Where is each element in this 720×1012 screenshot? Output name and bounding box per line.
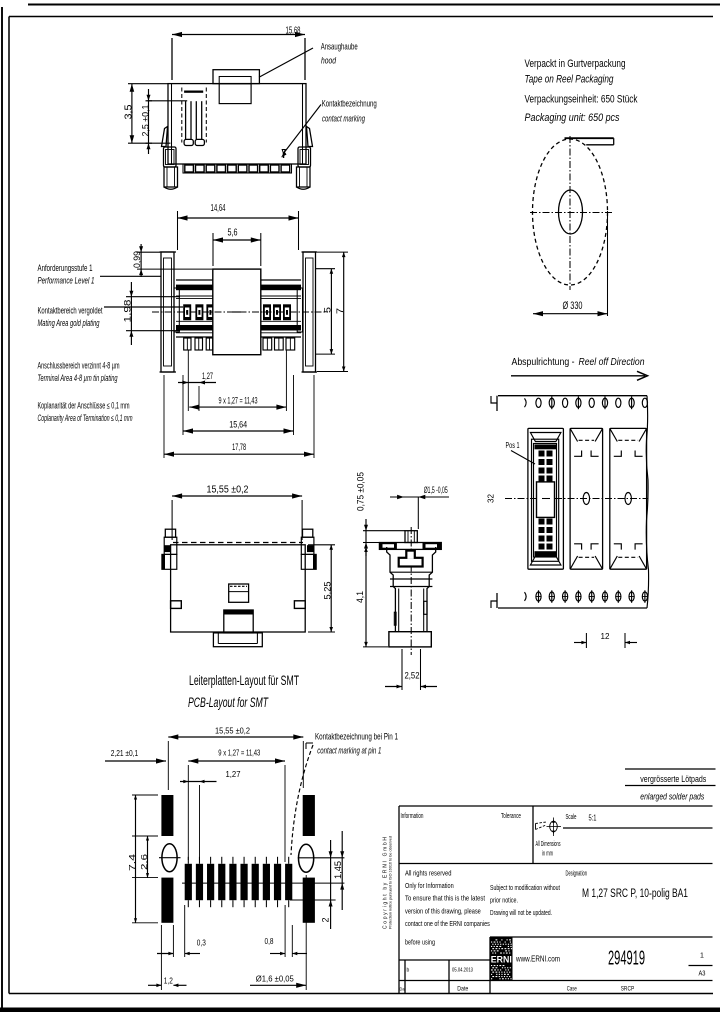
svg-text:Protection notice pursuant to: Protection notice pursuant to ISO 16016 …: [389, 836, 393, 929]
svg-text:A3: A3: [699, 969, 706, 978]
svg-text:prior notice.: prior notice.: [490, 896, 518, 905]
svg-text:Case: Case: [567, 986, 577, 993]
svg-text:Kontaktbereich vergoldet: Kontaktbereich vergoldet: [38, 306, 103, 316]
svg-text:Ø1,6 ±0,05: Ø1,6 ±0,05: [256, 974, 294, 984]
svg-text:7,4: 7,4: [127, 854, 137, 871]
svg-text:Ø 330: Ø 330: [563, 300, 583, 312]
svg-text:PCB-Layout for SMT: PCB-Layout for SMT: [188, 695, 269, 710]
svg-text:Terminal Area 4-8 µm tin plati: Terminal Area 4-8 µm tin plating: [38, 373, 118, 383]
svg-text:1,45: 1,45: [333, 861, 344, 879]
svg-text:Drawing will not be updated.: Drawing will not be updated.: [490, 908, 552, 917]
svg-text:Reel off Direction: Reel off Direction: [579, 356, 645, 368]
svg-text:To ensure that this is the lat: To ensure that this is the latest: [405, 894, 486, 903]
svg-text:2,6: 2,6: [139, 854, 149, 870]
svg-text:15,64: 15,64: [229, 420, 247, 431]
svg-text:0,8: 0,8: [265, 937, 274, 946]
svg-text:5,25: 5,25: [323, 582, 334, 600]
svg-text:contact one of the ERNI compan: contact one of the ERNI companies: [405, 919, 490, 928]
svg-text:Information: Information: [401, 813, 424, 820]
svg-text:Kontaktbezeichnung: Kontaktbezeichnung: [322, 99, 377, 110]
svg-text:15,55 ±0,2: 15,55 ±0,2: [207, 485, 249, 496]
svg-text:enlarged solder pads: enlarged solder pads: [640, 792, 704, 802]
svg-text:b: b: [407, 968, 410, 974]
svg-text:2,21 ±0,1: 2,21 ±0,1: [111, 749, 139, 758]
svg-text:Coplanarity Area of Terminatio: Coplanarity Area of Termination ≤ 0,1 mm: [38, 413, 133, 423]
svg-text:1,2: 1,2: [164, 976, 173, 985]
svg-text:Verpackungseinheit: 650 Stück: Verpackungseinheit: 650 Stück: [525, 94, 638, 106]
svg-text:Verpackt in Gurtverpackung: Verpackt in Gurtverpackung: [525, 58, 626, 70]
svg-text:Kontaktbezeichnung bei Pin 1: Kontaktbezeichnung bei Pin 1: [315, 732, 398, 742]
svg-text:5,6: 5,6: [228, 227, 238, 239]
svg-text:All Dimensions: All Dimensions: [536, 841, 561, 848]
svg-text:Anschlussbereich verzinnt 4-8: Anschlussbereich verzinnt 4-8 µm: [38, 361, 120, 371]
svg-text:5:1: 5:1: [589, 814, 597, 823]
svg-text:12: 12: [601, 632, 611, 641]
svg-text:9 x 1,27 = 11,43: 9 x 1,27 = 11,43: [218, 749, 260, 758]
svg-text:2: 2: [321, 918, 331, 923]
svg-text:ERNI: ERNI: [491, 955, 512, 965]
svg-text:0,99: 0,99: [132, 251, 143, 268]
svg-text:Ø1,5 -0,05: Ø1,5 -0,05: [424, 485, 448, 495]
svg-text:Subject to modification withou: Subject to modification without: [490, 883, 561, 892]
svg-text:5: 5: [323, 307, 334, 313]
svg-text:9 x 1,27 = 11,43: 9 x 1,27 = 11,43: [219, 396, 258, 406]
svg-text:Mating Area gold plating: Mating Area gold plating: [38, 318, 100, 328]
svg-text:Pos 1: Pos 1: [506, 441, 520, 450]
svg-text:www.ERNI.com: www.ERNI.com: [515, 955, 560, 964]
svg-text:before using: before using: [405, 938, 435, 947]
svg-text:Scale: Scale: [566, 814, 577, 821]
svg-text:1,27: 1,27: [226, 770, 242, 779]
svg-text:7: 7: [335, 308, 346, 314]
svg-text:hood: hood: [321, 56, 337, 67]
svg-text:All rights reserved: All rights reserved: [405, 869, 452, 878]
svg-text:Date: Date: [457, 986, 468, 993]
svg-text:0,3: 0,3: [197, 938, 206, 947]
svg-text:32: 32: [487, 493, 496, 503]
svg-text:Koplanarität der Anschlüsse ≤: Koplanarität der Anschlüsse ≤ 0,1 mm: [38, 401, 130, 411]
svg-text:Designation: Designation: [566, 871, 588, 878]
svg-text:in mm: in mm: [542, 851, 553, 858]
svg-text:3,5: 3,5: [124, 104, 135, 119]
svg-text:Leiterplatten-Layout für SMT: Leiterplatten-Layout für SMT: [189, 673, 299, 688]
svg-text:1: 1: [700, 953, 704, 960]
svg-text:Ansaughaube: Ansaughaube: [321, 42, 358, 53]
svg-text:contact marking: contact marking: [322, 114, 365, 125]
svg-text:14,64: 14,64: [211, 202, 226, 214]
svg-text:4,1: 4,1: [355, 591, 366, 603]
svg-text:05.04.2013: 05.04.2013: [452, 968, 473, 974]
svg-text:17,78: 17,78: [232, 442, 246, 453]
svg-text:Tolerance: Tolerance: [501, 813, 521, 820]
svg-text:Packaging unit: 650 pcs: Packaging unit: 650 pcs: [525, 112, 620, 124]
svg-text:Tape on Reel Packaging: Tape on Reel Packaging: [525, 74, 615, 86]
svg-text:1,98: 1,98: [123, 300, 134, 323]
svg-text:vergrösserte Lötpads: vergrösserte Lötpads: [640, 774, 706, 784]
svg-text:294919: 294919: [608, 948, 645, 970]
svg-text:15,55 ±0,2: 15,55 ±0,2: [215, 726, 250, 736]
svg-text:Performance Level 1: Performance Level 1: [38, 276, 95, 286]
svg-text:15,68: 15,68: [286, 25, 301, 37]
svg-text:Only for Information: Only for Information: [405, 881, 454, 890]
svg-text:2,52: 2,52: [405, 671, 420, 682]
svg-text:version of this drawing, pleas: version of this drawing, please: [405, 906, 481, 915]
svg-text:Abspulrichtung -: Abspulrichtung -: [512, 356, 575, 368]
svg-text:0,75 ±0,05: 0,75 ±0,05: [356, 472, 366, 511]
svg-text:M 1,27 SRC P, 10-polig BA1: M 1,27 SRC P, 10-polig BA1: [582, 888, 688, 900]
svg-text:contact marking at pin 1: contact marking at pin 1: [317, 746, 381, 756]
svg-text:2,5 ±0,1: 2,5 ±0,1: [141, 105, 152, 137]
svg-text:Anforderungsstufe 1: Anforderungsstufe 1: [38, 263, 93, 273]
svg-text:SRCP: SRCP: [621, 986, 635, 993]
svg-text:Da: Da: [400, 987, 405, 992]
svg-text:1,27: 1,27: [202, 371, 213, 382]
